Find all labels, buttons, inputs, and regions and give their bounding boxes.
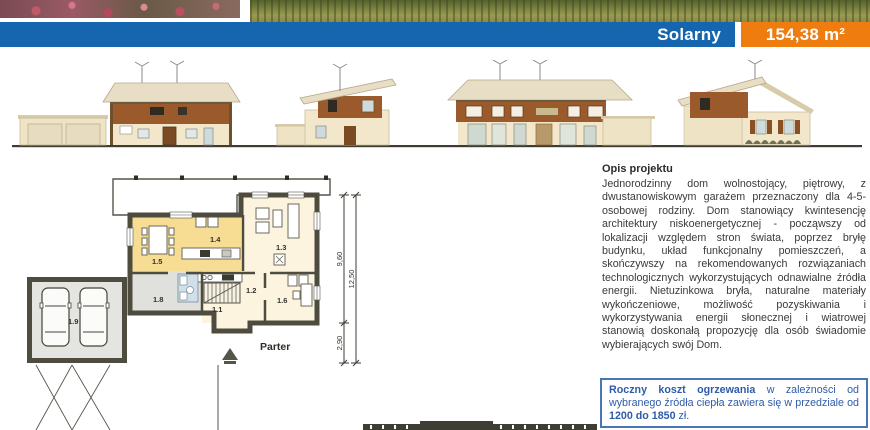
stove [222,275,234,281]
description-body: Jednorodzinny dom wolnostojący, piętrowy… [602,178,866,352]
elevation-front-garage [18,61,240,145]
entrance-arrow [222,348,238,364]
title-bar: Solarny [0,22,735,47]
dimension-label: 12,50 [347,270,356,289]
project-description: Opis projektu Jednorodzinny dom wolnosto… [602,163,866,352]
elevations-figure [0,60,870,150]
description-heading: Opis projektu [602,163,866,175]
dimension-label: 9,60 [335,252,344,267]
desk [301,284,312,306]
room-label: 1.9 [68,317,78,326]
area-badge: 154,38 m² [741,22,870,47]
floor-label: Parter [260,341,290,353]
room-label: 1.8 [153,295,163,304]
upper-plan-fragment [363,421,597,430]
elevation-side-left [275,64,396,145]
ground-line [12,145,862,147]
armchair [256,222,269,233]
catalog-page: Solarny 154,38 m² [0,0,870,430]
cost-value: 1200 do 1850 [609,410,676,422]
stairs [204,283,240,303]
coffee-table [273,210,282,227]
grass-field-photo [250,0,870,22]
bathroom-fixtures [178,274,198,302]
chair [293,291,300,299]
room-label: 1.4 [210,235,221,244]
area-value: 154,38 m² [766,25,845,44]
room-label: 1.6 [277,296,287,305]
wardrobe [288,275,297,286]
room-label: 1.3 [276,243,286,252]
elevation-side-right [678,60,814,145]
room-label: 1.5 [152,257,162,266]
sofa [288,204,299,238]
armchair [256,208,269,219]
cost-tail: zł. [676,410,690,422]
cost-lead: Roczny koszt ogrzewania [609,384,755,396]
pergola [36,365,110,430]
floor-plan-figure: 1.5 1.4 1.3 1.2 1.6 1.1 1.8 1.9 9,60 2,9… [0,160,600,430]
room-label: 1.1 [212,305,222,314]
room-label: 1.2 [246,286,256,295]
sink [222,250,231,257]
heating-cost-box: Roczny koszt ogrzewania w zależności od … [600,378,868,428]
car [78,288,109,346]
dimension-label: 2,90 [335,336,344,351]
car [40,288,71,346]
elevation-front-main [448,60,655,145]
dining-table [149,226,167,254]
cooktop [200,250,210,257]
project-title: Solarny [657,25,721,44]
flower-field-photo [0,0,240,18]
